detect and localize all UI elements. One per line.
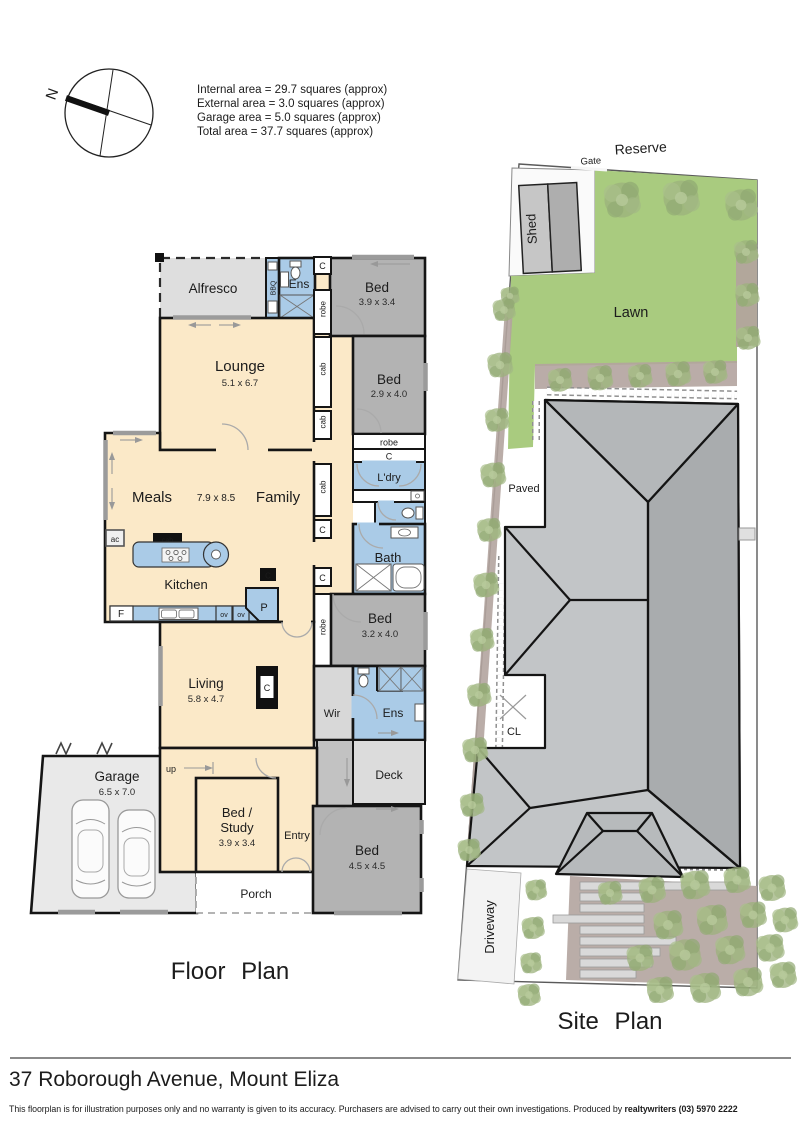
disclaimer-prefix: This floorplan is for illustration purpo…: [9, 1104, 625, 1114]
room-label: Study: [220, 820, 254, 835]
room-label: Meals: [132, 489, 172, 506]
closet-label: C: [319, 261, 326, 271]
room-wir: Wir: [314, 666, 353, 740]
room-label: Ens: [289, 277, 310, 291]
room-label: Bath: [375, 550, 402, 565]
room-label: L'dry: [377, 472, 401, 484]
hallway-floor: [331, 336, 353, 594]
room-laundry: L'dry: [353, 462, 425, 502]
car-icon: [118, 810, 155, 898]
up-label: up: [166, 764, 176, 774]
compass-icon: N: [43, 69, 153, 157]
cab-label: cab: [319, 480, 328, 493]
room-dims: 4.5 x 4.5: [349, 861, 385, 872]
room-dims: 3.9 x 3.4: [359, 297, 395, 308]
house-roof: [467, 400, 755, 877]
vanity-icon: [281, 272, 289, 287]
room-label: Wir: [324, 708, 341, 720]
room-label: Bed: [365, 280, 389, 295]
room-dims: 5.8 x 4.7: [188, 694, 224, 705]
sink-icon: [212, 550, 221, 559]
room-bed-mid: Bed 2.9 x 4.0: [353, 336, 426, 434]
sink-icon: [159, 608, 198, 620]
property-address: 37 Roborough Avenue, Mount Eliza: [9, 1068, 339, 1092]
disclaimer-text: This floorplan is for illustration purpo…: [9, 1104, 795, 1114]
pantry-label: P: [260, 602, 267, 614]
robe-label: robe: [319, 618, 328, 635]
garage-door-mark: [56, 743, 71, 754]
room-bed-study: Bed / Study 3.9 x 3.4: [196, 778, 278, 872]
robe-label: robe: [380, 438, 398, 448]
oven-label: ov: [237, 612, 245, 619]
room-porch: Porch: [196, 872, 317, 913]
toilet-icon: [358, 668, 369, 687]
cab-label: cab: [319, 415, 328, 428]
room-label: Bed /: [222, 805, 253, 820]
cab-label: cab: [319, 362, 328, 375]
kitchen-island: [133, 542, 229, 567]
room-ens-rear: Ens: [353, 666, 425, 740]
room-label: Bed: [355, 843, 379, 858]
garage-door-mark: [97, 743, 112, 754]
room-dims: 7.9 x 8.5: [197, 493, 236, 504]
room-label: Bed: [377, 372, 401, 387]
compass-north-label: N: [43, 86, 63, 102]
clothesline-icon: CL: [500, 695, 526, 738]
room-label: Ens: [383, 706, 404, 720]
room-dims: 3.9 x 3.4: [219, 838, 255, 849]
car-icon: [72, 800, 109, 898]
site-plan-title: Site Plan: [500, 1008, 720, 1036]
room-label: Garage: [94, 769, 139, 784]
gate-label: Gate: [580, 155, 601, 167]
room-bed-front: Bed 3.9 x 3.4: [330, 257, 425, 336]
closet-label: C: [319, 573, 326, 583]
room-label: Lounge: [215, 358, 265, 375]
oven-label: ov: [220, 612, 228, 619]
vanity-icon: [415, 704, 424, 721]
bbq-label: BBQ: [271, 280, 278, 295]
room-dims: 5.1 x 6.7: [222, 378, 258, 389]
area-summary: Internal area = 29.7 squares (approx) Ex…: [197, 84, 387, 140]
area-line: Total area = 37.7 squares (approx): [197, 126, 387, 140]
shed-label: Shed: [523, 213, 540, 244]
room-label: Kitchen: [164, 577, 207, 592]
cl-label: CL: [507, 726, 521, 738]
closet-pillar: C: [256, 666, 278, 709]
room-bed-front-right: Bed 4.5 x 4.5: [313, 806, 422, 913]
closet-label: C: [386, 452, 393, 462]
closet-label: C: [265, 572, 271, 581]
room-dims: 6.5 x 7.0: [99, 787, 135, 798]
room-bath: Bath: [353, 524, 425, 594]
shed-building: Shed: [519, 183, 582, 274]
closet-label: C: [264, 683, 271, 693]
bathtub-icon: [393, 564, 424, 591]
room-lounge: Lounge 5.1 x 6.7: [160, 318, 314, 451]
fridge-label: F: [118, 609, 124, 620]
cooktop-icon: [162, 548, 189, 562]
bbq-bench: BBQ: [266, 258, 279, 320]
room-label: Porch: [240, 887, 271, 901]
room-alfresco: Alfresco: [155, 253, 266, 318]
vanity-icon: [391, 527, 418, 538]
shower-icon: [379, 667, 423, 691]
room-label: Living: [188, 676, 223, 691]
footer-divider: [10, 1057, 791, 1059]
ac-pad: [739, 528, 755, 540]
robe-label: robe: [319, 300, 328, 317]
room-living: Living 5.8 x 4.7 C: [160, 622, 314, 748]
rear-corridor: [317, 740, 353, 806]
room-dims: 2.9 x 4.0: [371, 389, 407, 400]
room-label: Bed: [368, 611, 392, 626]
room-label: Alfresco: [189, 281, 238, 296]
floor-plan-title: Floor Plan: [120, 958, 340, 986]
room-bed-rear: Bed 3.2 x 4.0: [331, 594, 426, 666]
shower-icon: [356, 564, 391, 591]
room-label-entry: Entry: [284, 830, 310, 842]
room-label: Deck: [375, 768, 403, 782]
producer-credit: realtywriters (03) 5970 2222: [625, 1104, 738, 1114]
shower-icon: [280, 295, 314, 318]
site-plan: Shed: [458, 138, 799, 1006]
room-dims: 3.2 x 4.0: [362, 629, 398, 640]
area-line: Internal area = 29.7 squares (approx): [197, 84, 387, 98]
closet-label: C: [319, 525, 326, 535]
driveway-label: Driveway: [482, 900, 497, 954]
area-line: External area = 3.0 squares (approx): [197, 98, 387, 112]
lawn-label: Lawn: [614, 305, 649, 321]
room-label: Family: [256, 489, 301, 506]
room-ens-front: Ens: [279, 258, 315, 320]
trough-icon: [411, 491, 424, 501]
floorplan-page: N Alfresco BBQ: [0, 0, 800, 1132]
area-line: Garage area = 5.0 squares (approx): [197, 112, 387, 126]
room-meals-family: Meals 7.9 x 8.5 Family: [105, 433, 314, 622]
reserve-label: Reserve: [614, 138, 667, 157]
room-deck: Deck: [353, 740, 425, 804]
paved-label: Paved: [508, 483, 539, 495]
floor-plan: Alfresco BBQ Ens: [31, 253, 426, 913]
ac-label: ac: [111, 535, 119, 544]
